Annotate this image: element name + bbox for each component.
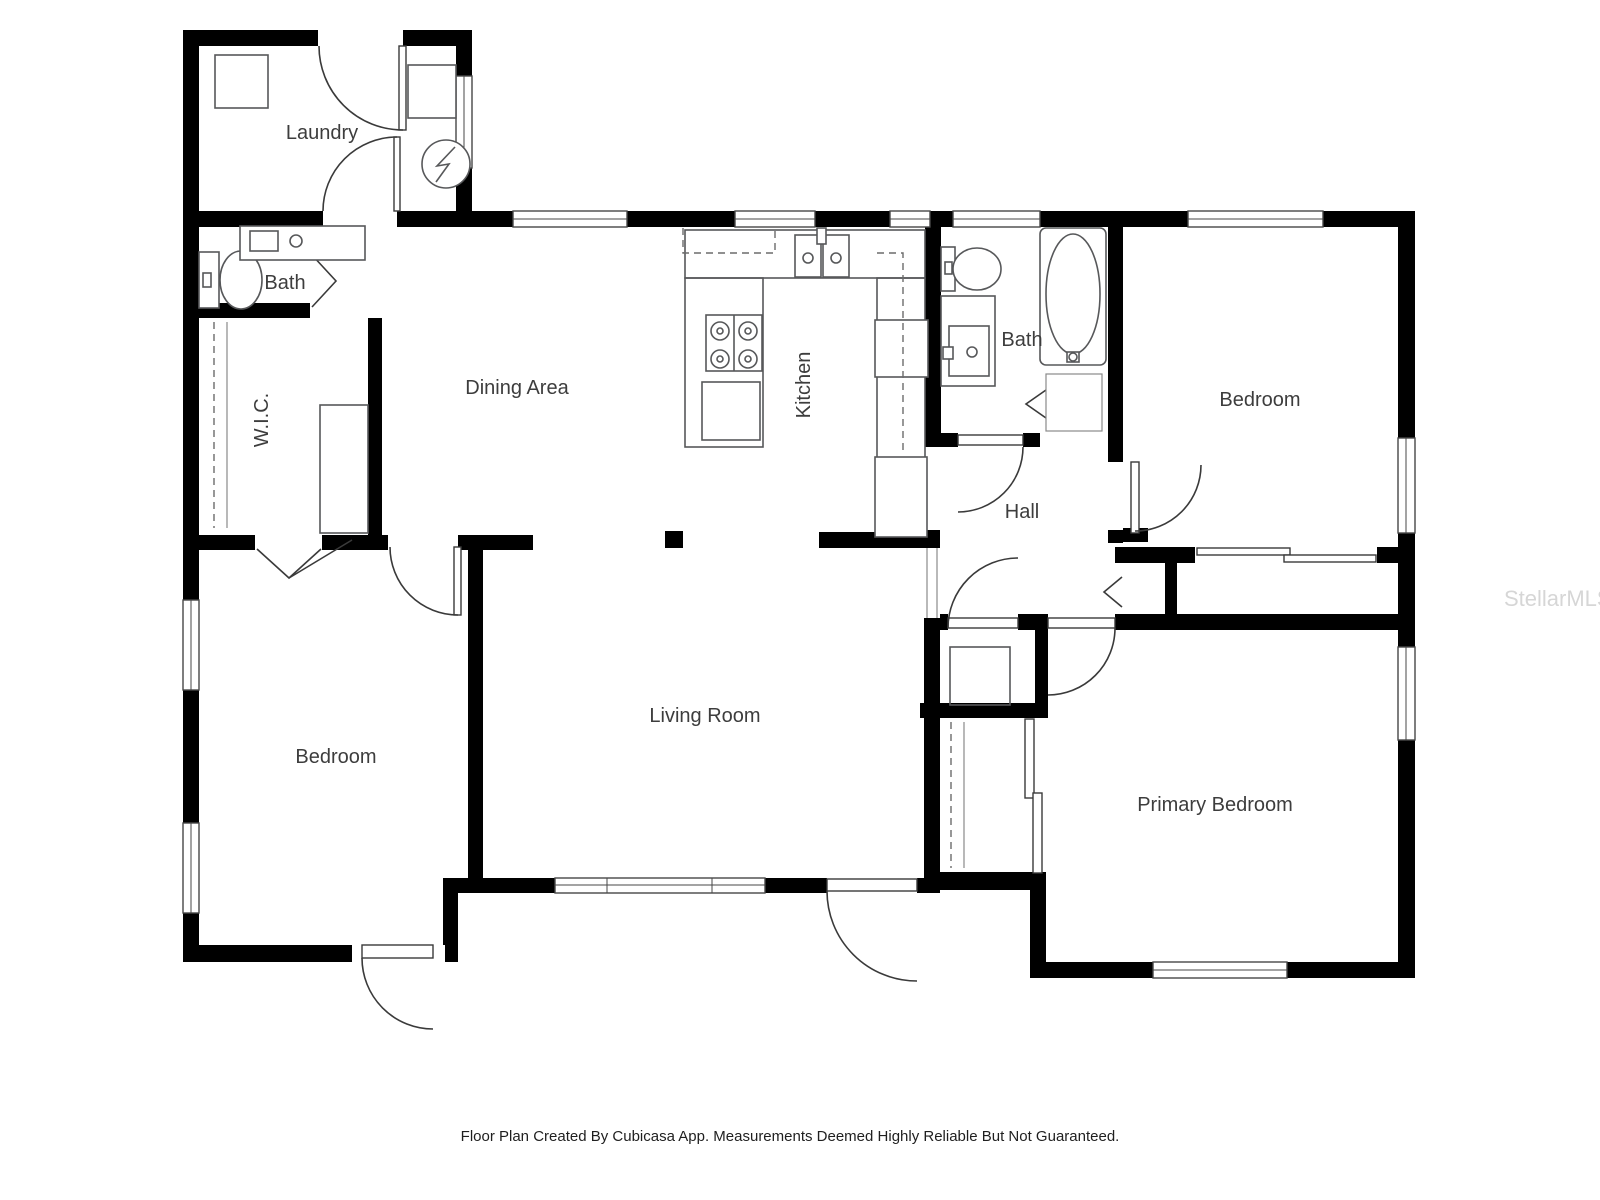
floor-plan-canvas: Laundry Bath W.I.C. Dining Area Kitchen … — [0, 0, 1600, 1200]
washer-icon — [215, 55, 268, 108]
door-swing — [1131, 462, 1201, 533]
stove-icon — [706, 315, 762, 371]
room-label-dining: Dining Area — [465, 377, 569, 399]
room-label-bedroom-right: Bedroom — [1219, 389, 1300, 411]
wall — [368, 318, 382, 535]
column-post — [665, 531, 683, 548]
base-cabinet — [875, 457, 927, 537]
room-label-primary: Primary Bedroom — [1137, 794, 1293, 816]
door-swing — [319, 46, 406, 130]
closet-opening — [255, 535, 322, 550]
door-swing — [323, 137, 400, 211]
room-label-living: Living Room — [649, 705, 760, 727]
room-label-wic: W.I.C. — [251, 393, 273, 447]
oven-icon — [702, 382, 760, 440]
floor-plan-page: Laundry Bath W.I.C. Dining Area Kitchen … — [0, 0, 1600, 1200]
room-label-kitchen: Kitchen — [793, 352, 815, 419]
window — [1398, 647, 1415, 740]
wall — [183, 30, 199, 227]
room-label-laundry: Laundry — [286, 122, 358, 144]
window — [183, 600, 199, 690]
bifold-door-icon — [257, 549, 321, 578]
watermark: StellarMLS — [1504, 586, 1600, 611]
refrigerator-icon — [875, 320, 928, 377]
window — [953, 211, 1040, 227]
window — [1153, 962, 1287, 978]
dryer-icon — [408, 65, 456, 118]
wall — [924, 872, 1042, 890]
toilet-icon — [941, 247, 1001, 291]
door-opening — [1108, 462, 1123, 530]
wall — [1165, 563, 1177, 614]
wall — [183, 535, 533, 550]
bathtub-icon — [1040, 228, 1106, 365]
door-swing — [390, 547, 461, 615]
water-heater-closet — [950, 647, 1010, 705]
door-opening — [318, 30, 403, 46]
room-label-bath-hall: Bath — [1001, 329, 1042, 351]
room-label-hall: Hall — [1005, 501, 1039, 523]
door-opening — [388, 535, 458, 550]
door-opening — [323, 211, 397, 227]
closet-shelving — [320, 405, 368, 533]
sink-vanity-icon — [941, 296, 995, 386]
footer-disclaimer: Floor Plan Created By Cubicasa App. Meas… — [461, 1128, 1120, 1145]
door-swing — [827, 879, 917, 981]
room-label-bedroom-left: Bedroom — [295, 746, 376, 768]
window — [183, 823, 199, 913]
kitchen-sink-icon — [795, 228, 849, 277]
accordion-door-icon — [1026, 390, 1046, 418]
window — [513, 211, 627, 227]
accordion-door-icon — [312, 255, 336, 307]
sink-vanity-icon — [240, 226, 365, 260]
water-heater-icon — [422, 140, 470, 188]
sliding-door-icon — [1025, 719, 1042, 873]
window — [1188, 211, 1323, 227]
door-swing — [948, 558, 1018, 628]
upper-cabinet-outline — [683, 228, 775, 253]
accordion-door-icon — [1104, 577, 1122, 607]
window — [890, 211, 930, 227]
wall — [468, 535, 483, 893]
door-swing — [362, 945, 433, 1029]
tub-niche — [1046, 374, 1102, 431]
window — [555, 878, 765, 893]
window — [735, 211, 815, 227]
window — [1398, 438, 1415, 533]
wall — [1398, 211, 1415, 978]
room-label-bath-upper: Bath — [264, 272, 305, 294]
